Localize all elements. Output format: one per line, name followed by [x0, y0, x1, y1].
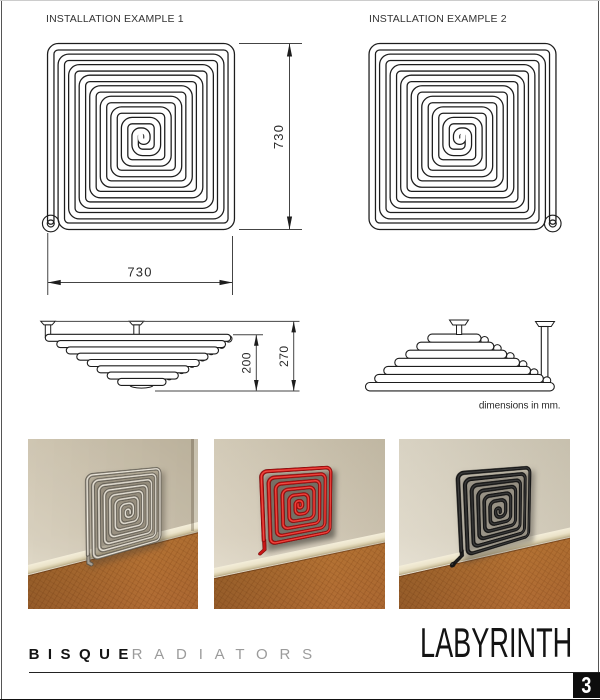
svg-text:270: 270 — [277, 345, 291, 367]
svg-text:200: 200 — [240, 352, 254, 374]
svg-text:dimensions in mm.: dimensions in mm. — [479, 401, 561, 412]
svg-text:730: 730 — [127, 265, 152, 280]
svg-text:730: 730 — [271, 124, 286, 149]
